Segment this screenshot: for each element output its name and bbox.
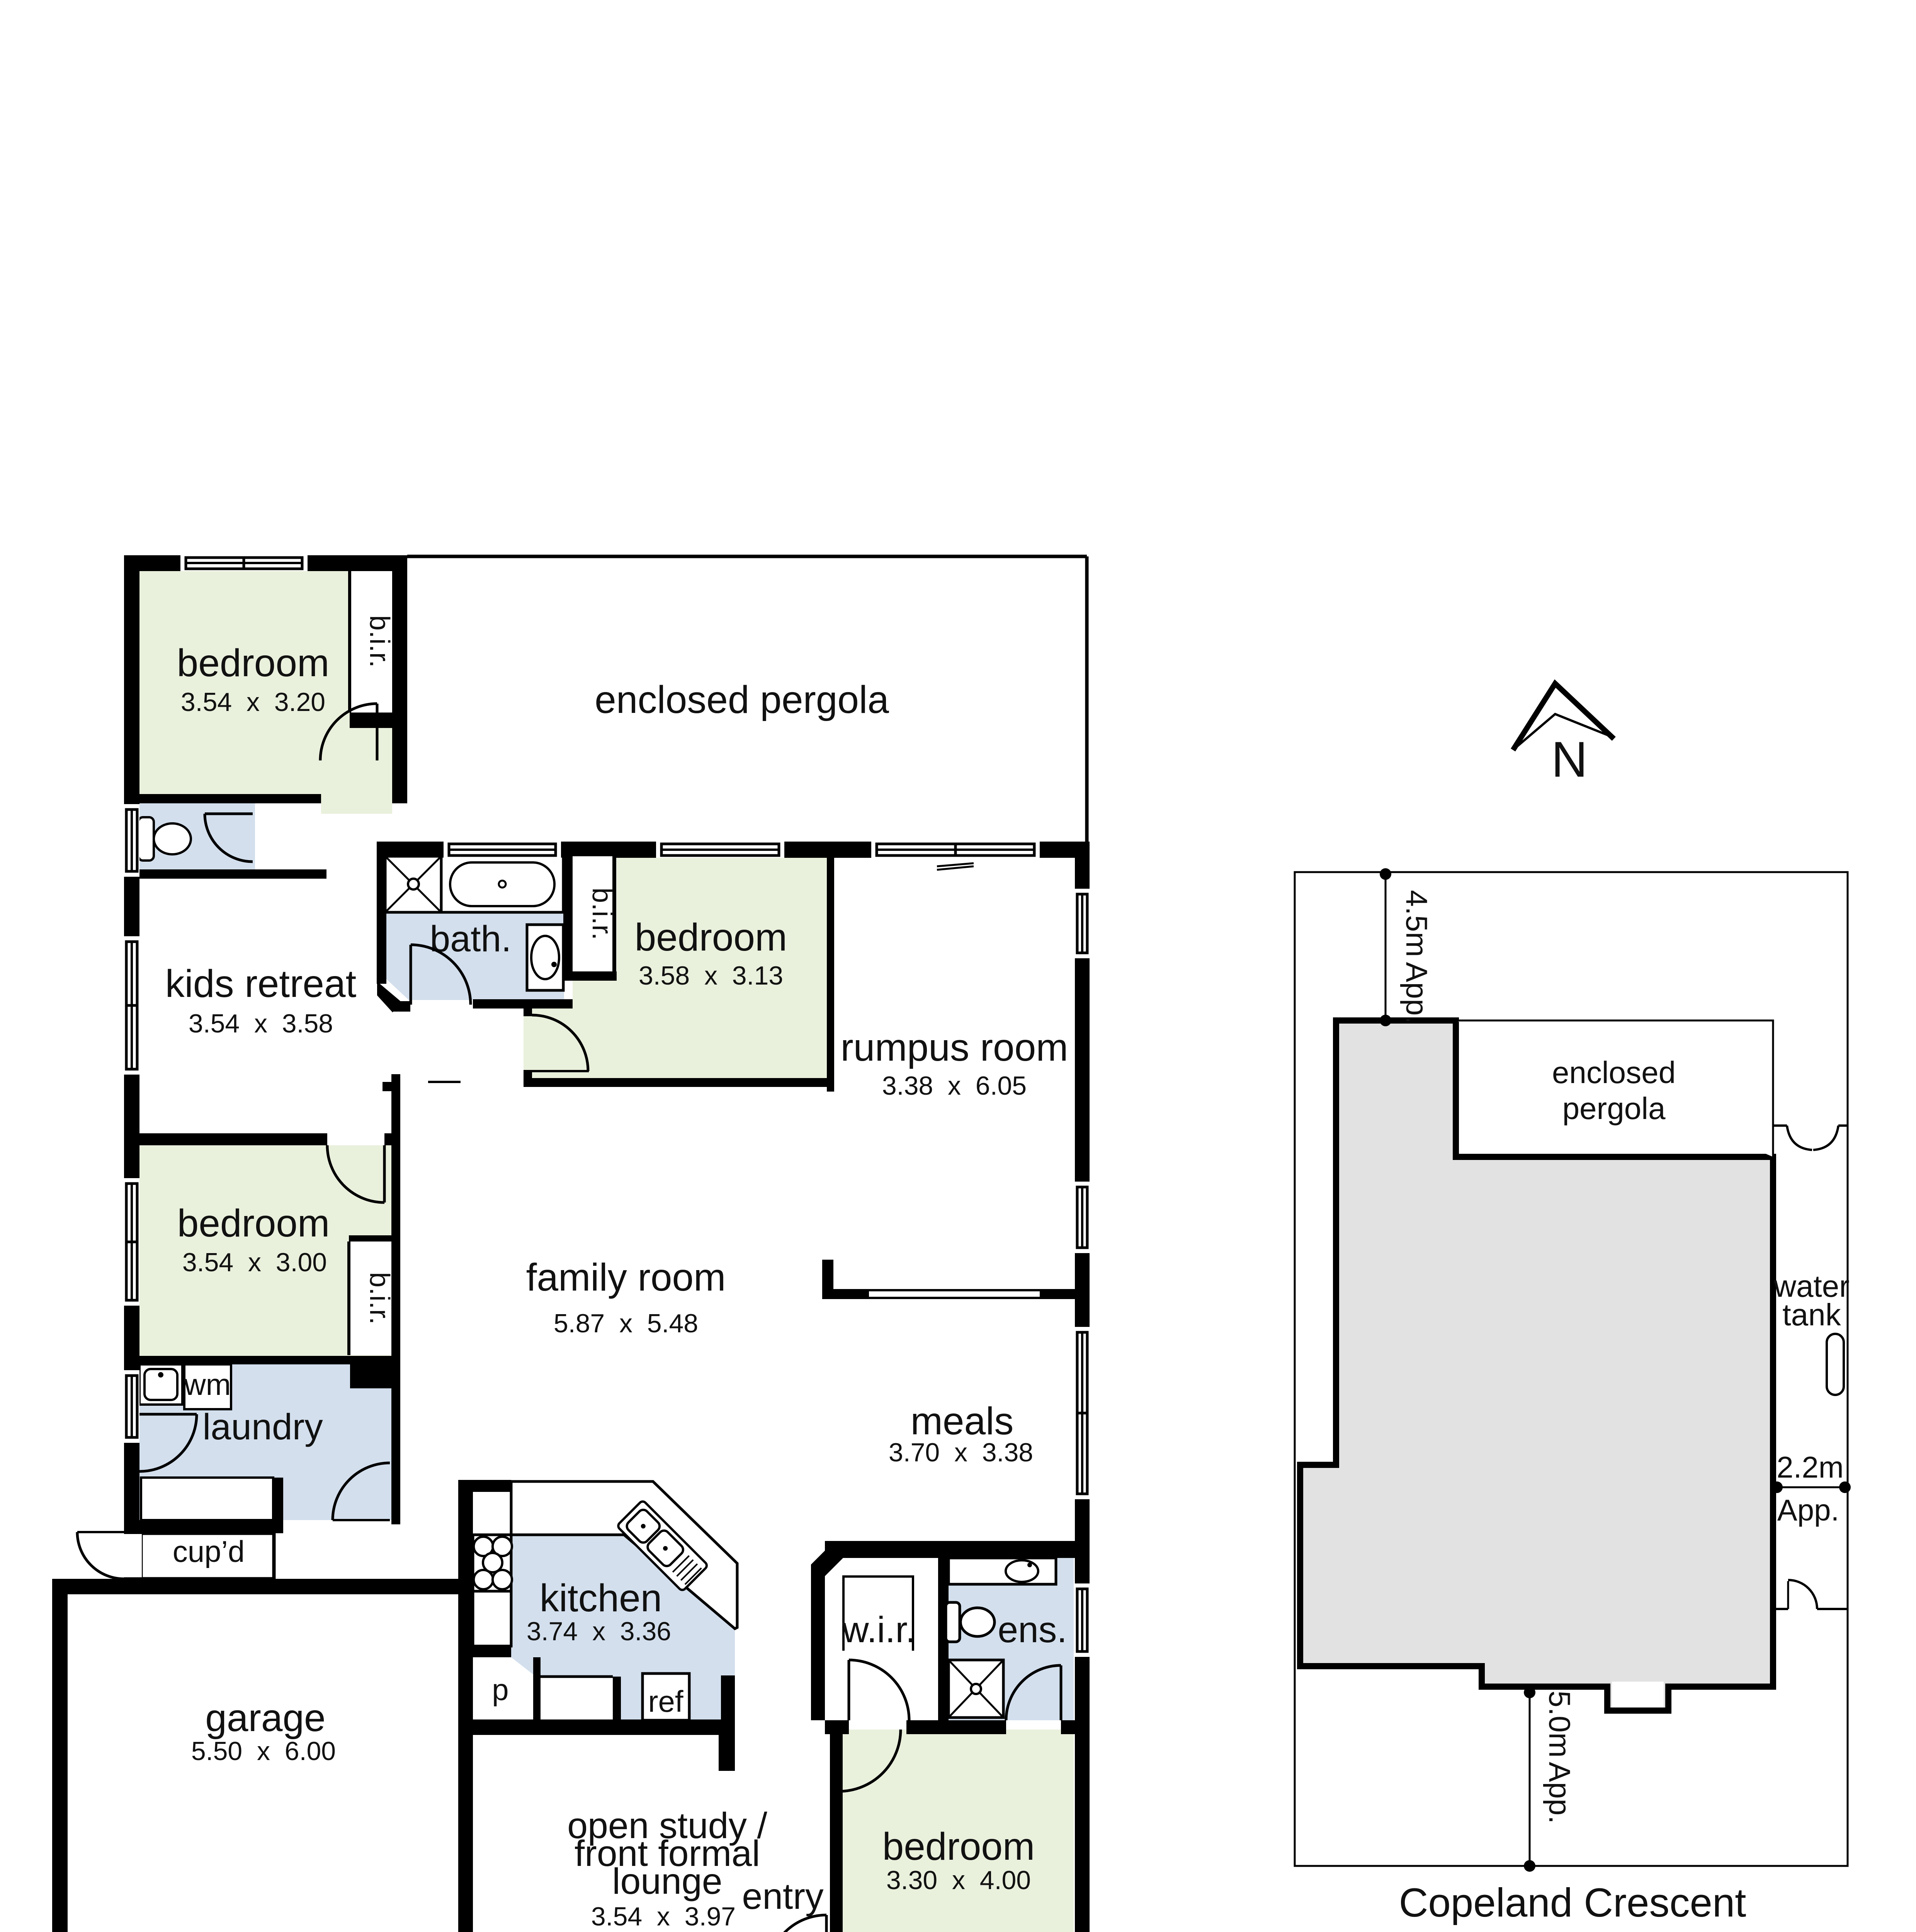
svg-text:5.87 x 5.48: 5.87 x 5.48 xyxy=(554,1309,698,1338)
svg-text:bedroom: bedroom xyxy=(177,641,330,685)
svg-text:3.54 x 3.58: 3.54 x 3.58 xyxy=(189,1009,333,1038)
svg-text:App.: App. xyxy=(1400,962,1434,1024)
svg-text:3.54 x 3.00: 3.54 x 3.00 xyxy=(182,1248,327,1277)
svg-text:ref: ref xyxy=(648,1684,683,1718)
svg-text:enclosed pergola: enclosed pergola xyxy=(595,678,889,721)
svg-text:kitchen: kitchen xyxy=(540,1577,662,1620)
svg-text:enclosed: enclosed xyxy=(1552,1055,1676,1090)
svg-text:b.i.r.: b.i.r. xyxy=(587,888,617,940)
svg-text:5.50 x 6.00: 5.50 x 6.00 xyxy=(191,1736,336,1766)
svg-text:3.54 x 3.97: 3.54 x 3.97 xyxy=(591,1902,736,1931)
svg-text:rumpus room: rumpus room xyxy=(840,1026,1068,1069)
svg-text:Copeland Crescent: Copeland Crescent xyxy=(1399,1880,1746,1925)
svg-text:entry: entry xyxy=(742,1876,824,1917)
svg-text:tank: tank xyxy=(1782,1298,1841,1332)
svg-text:5.0m: 5.0m xyxy=(1543,1690,1577,1757)
svg-text:b.i.r.: b.i.r. xyxy=(364,615,395,668)
svg-text:wm: wm xyxy=(184,1367,231,1401)
svg-text:kids retreat: kids retreat xyxy=(165,962,357,1005)
svg-text:family room: family room xyxy=(526,1256,726,1299)
svg-text:laundry: laundry xyxy=(202,1406,323,1447)
svg-text:N: N xyxy=(1551,731,1588,787)
svg-text:p: p xyxy=(492,1673,508,1707)
svg-text:ens.: ens. xyxy=(998,1609,1067,1650)
svg-text:4.5m: 4.5m xyxy=(1400,890,1434,957)
svg-text:App.: App. xyxy=(1543,1762,1577,1824)
svg-text:bedroom: bedroom xyxy=(635,916,787,959)
svg-text:b.i.r.: b.i.r. xyxy=(364,1272,395,1325)
svg-text:3.54 x 3.20: 3.54 x 3.20 xyxy=(181,687,325,717)
svg-text:3.38 x 6.05: 3.38 x 6.05 xyxy=(882,1071,1027,1100)
svg-text:3.58 x 3.13: 3.58 x 3.13 xyxy=(639,961,783,990)
svg-text:pergola: pergola xyxy=(1562,1091,1666,1126)
svg-text:meals: meals xyxy=(911,1400,1014,1443)
svg-text:cup’d: cup’d xyxy=(173,1534,245,1568)
svg-text:w.i.r.: w.i.r. xyxy=(842,1609,916,1650)
svg-text:bedroom: bedroom xyxy=(882,1825,1035,1868)
svg-text:lounge: lounge xyxy=(612,1861,722,1902)
svg-text:3.70 x 3.38: 3.70 x 3.38 xyxy=(889,1438,1033,1467)
svg-text:3.74 x 3.36: 3.74 x 3.36 xyxy=(527,1617,671,1646)
svg-text:3.30 x 4.00: 3.30 x 4.00 xyxy=(886,1866,1031,1895)
svg-text:App.: App. xyxy=(1777,1493,1839,1527)
svg-text:garage: garage xyxy=(205,1696,325,1740)
svg-text:bedroom: bedroom xyxy=(177,1202,330,1245)
svg-text:2.2m: 2.2m xyxy=(1777,1450,1843,1484)
